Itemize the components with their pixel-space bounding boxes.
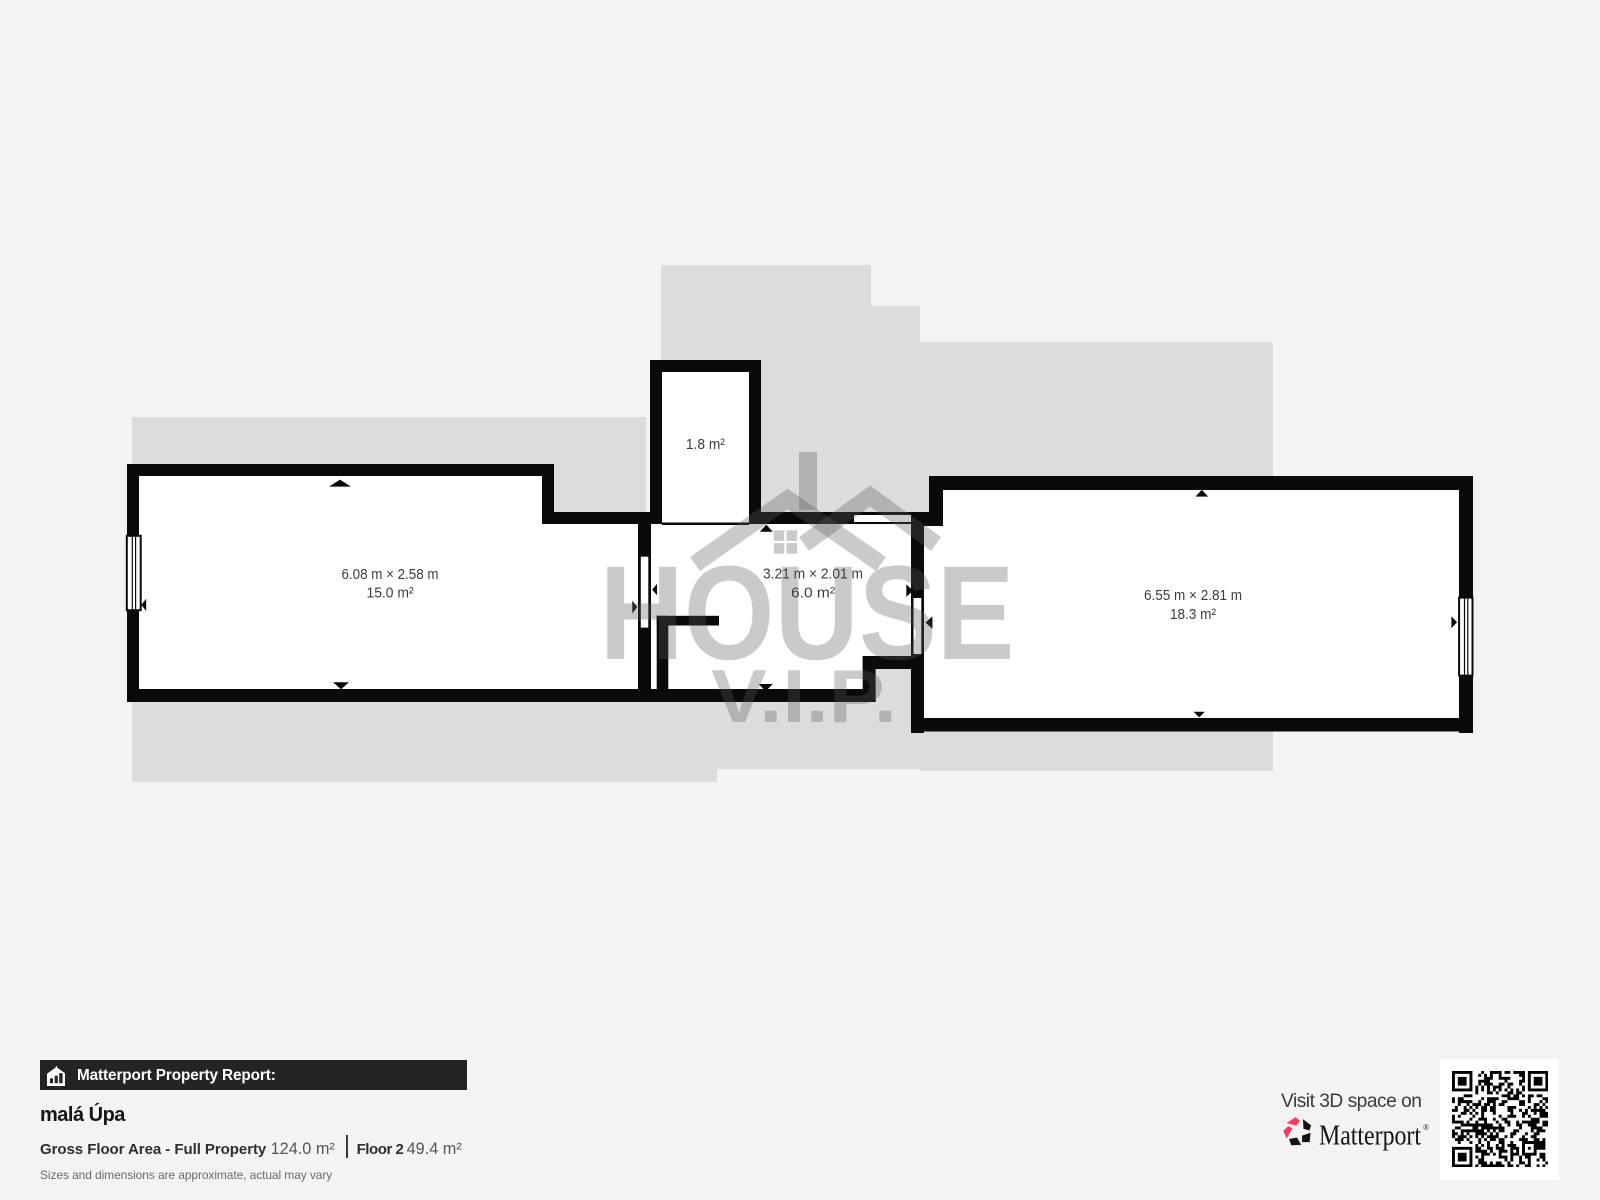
svg-text:18.3 m²: 18.3 m² xyxy=(1170,606,1216,623)
svg-text:3.21 m × 2.01 m: 3.21 m × 2.01 m xyxy=(763,566,863,583)
svg-text:6.0 m²: 6.0 m² xyxy=(791,585,835,602)
svg-text:®: ® xyxy=(1423,1123,1429,1132)
svg-text:15.0 m²: 15.0 m² xyxy=(367,585,414,602)
svg-text:6.08 m × 2.58 m: 6.08 m × 2.58 m xyxy=(342,566,439,583)
svg-text:V.I.P.: V.I.P. xyxy=(711,654,897,738)
svg-text:Matterport: Matterport xyxy=(1319,1121,1421,1152)
svg-text:6.55 m × 2.81 m: 6.55 m × 2.81 m xyxy=(1144,587,1242,604)
svg-text:1.8 m²: 1.8 m² xyxy=(686,436,725,453)
